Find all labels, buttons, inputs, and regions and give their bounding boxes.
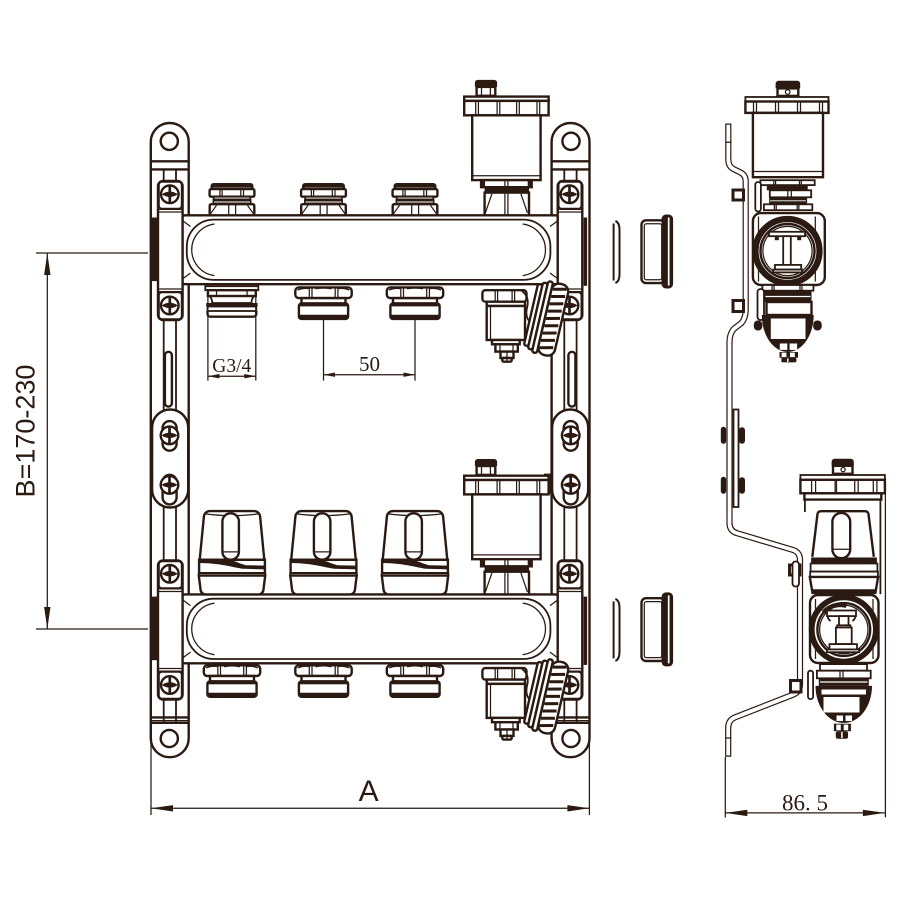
svg-text:G3/4: G3/4 xyxy=(212,356,251,377)
svg-text:B=170-230: B=170-230 xyxy=(11,365,41,498)
svg-text:50: 50 xyxy=(359,352,380,376)
svg-text:86. 5: 86. 5 xyxy=(782,791,828,816)
svg-text:A: A xyxy=(359,775,379,808)
